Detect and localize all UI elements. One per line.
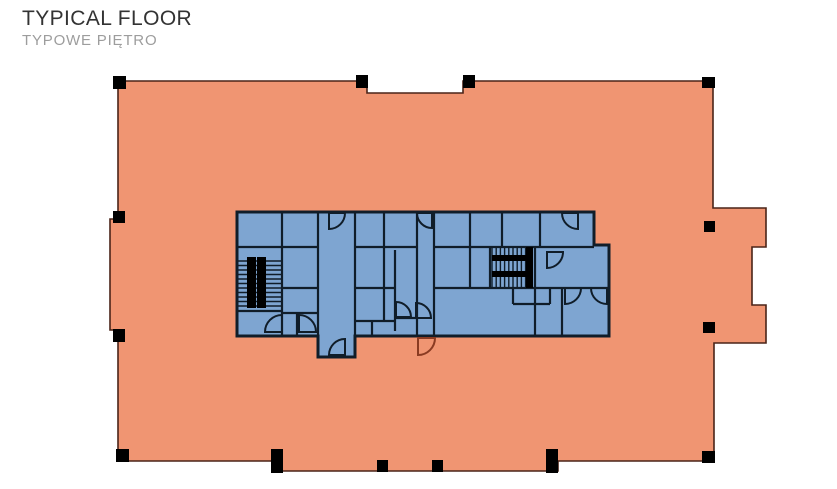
column-mark — [463, 75, 475, 88]
floor-plan-canvas — [0, 0, 837, 489]
column-mark — [703, 322, 715, 333]
column-mark — [271, 449, 283, 473]
page-subtitle: TYPOWE PIĘTRO — [22, 32, 192, 49]
page-title: TYPICAL FLOOR — [22, 7, 192, 30]
column-mark — [432, 460, 443, 472]
column-mark — [702, 451, 715, 463]
building-core — [237, 212, 609, 357]
column-mark — [113, 329, 125, 342]
column-mark — [377, 460, 388, 472]
column-mark — [356, 75, 368, 88]
column-mark — [702, 77, 715, 88]
column-mark — [546, 449, 558, 473]
column-mark — [116, 449, 129, 462]
stairs-east-landing — [526, 247, 533, 288]
floor-plan-page: TYPICAL FLOOR TYPOWE PIĘTRO — [0, 0, 837, 489]
stairs-west-landing — [257, 257, 266, 308]
column-mark — [113, 211, 125, 223]
page-header: TYPICAL FLOOR TYPOWE PIĘTRO — [22, 7, 192, 49]
column-mark — [113, 76, 126, 89]
stairs-west-landing — [247, 257, 256, 308]
column-mark — [704, 221, 715, 232]
